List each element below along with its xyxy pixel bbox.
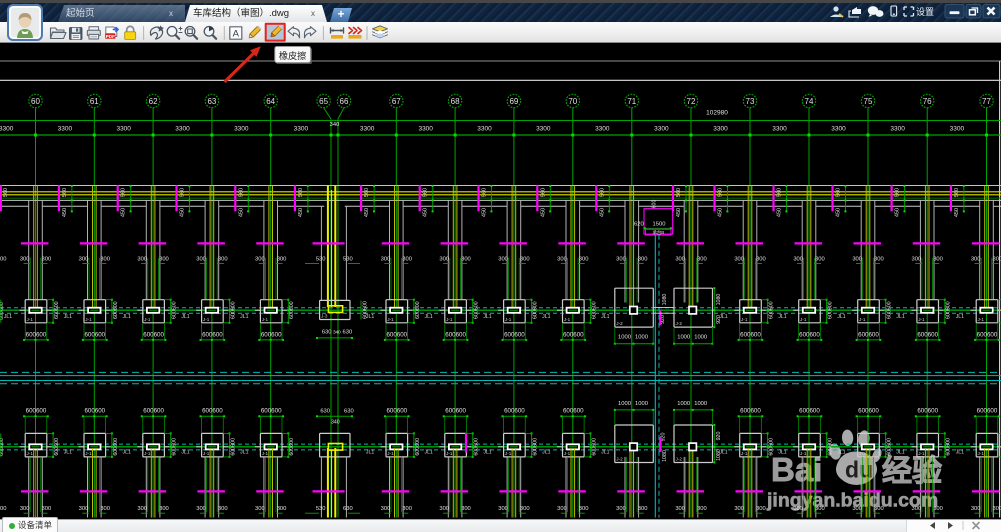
svg-text:300: 300: [933, 506, 943, 512]
svg-text:300: 300: [579, 506, 589, 512]
svg-text:600600: 600600: [977, 331, 998, 338]
svg-text:450: 450: [954, 208, 960, 217]
svg-text:600600: 600600: [799, 331, 820, 338]
svg-text:300: 300: [933, 256, 943, 262]
svg-text:450: 450: [62, 208, 68, 217]
svg-text:450: 450: [599, 208, 605, 217]
svg-text:300: 300: [874, 256, 884, 262]
svg-text:300: 300: [100, 506, 110, 512]
svg-text:J-1: J-1: [27, 451, 34, 456]
svg-text:J-1: J-1: [505, 317, 512, 322]
svg-text:设置: 设置: [916, 7, 934, 17]
svg-text:JL1: JL1: [778, 450, 786, 456]
svg-text:JL1: JL1: [542, 450, 550, 456]
svg-text:600600: 600600: [143, 407, 164, 414]
svg-text:JL1: JL1: [425, 450, 433, 456]
svg-text:J-1: J-1: [446, 317, 453, 322]
svg-text:JL1: JL1: [542, 314, 550, 320]
svg-text:300: 300: [439, 256, 449, 262]
svg-text:J-1: J-1: [446, 451, 453, 456]
svg-text:560: 560: [954, 188, 960, 197]
svg-text:600600: 600600: [740, 331, 761, 338]
svg-text:1000: 1000: [694, 335, 707, 341]
svg-text:560: 560: [718, 188, 724, 197]
svg-text:3300: 3300: [772, 126, 787, 133]
svg-text:600600: 600600: [828, 438, 834, 456]
svg-text:300: 300: [874, 506, 884, 512]
svg-text:630: 630: [320, 408, 330, 414]
svg-text:600600: 600600: [54, 438, 60, 456]
svg-text:300: 300: [137, 506, 147, 512]
svg-text:J-1: J-1: [564, 317, 571, 322]
svg-text:JL1: JL1: [837, 314, 845, 320]
svg-text:300: 300: [616, 256, 626, 262]
svg-text:3300: 3300: [116, 126, 131, 133]
svg-text:1000: 1000: [677, 401, 690, 407]
svg-text:300: 300: [277, 256, 287, 262]
svg-text:102980: 102980: [706, 110, 728, 117]
svg-text:560: 560: [599, 188, 605, 197]
svg-text:J-1: J-1: [27, 317, 34, 322]
svg-text:560: 560: [3, 188, 9, 197]
svg-text:530: 530: [316, 256, 326, 262]
svg-text:600600: 600600: [769, 301, 775, 319]
svg-text:J-1: J-1: [741, 451, 748, 456]
svg-text:JL1: JL1: [483, 314, 491, 320]
svg-text:600600: 600600: [563, 331, 584, 338]
svg-text:J-1: J-1: [918, 451, 925, 456]
svg-text:J-1: J-1: [978, 451, 985, 456]
svg-text:J-1: J-1: [741, 317, 748, 322]
svg-text:600600: 600600: [415, 301, 421, 319]
svg-text:1000: 1000: [618, 335, 631, 341]
svg-text:J-1: J-1: [978, 317, 985, 322]
svg-text:1000: 1000: [635, 401, 648, 407]
svg-text:1500: 1500: [653, 221, 666, 227]
svg-text:300: 300: [20, 506, 30, 512]
svg-text:J-1: J-1: [859, 317, 866, 322]
svg-text:920: 920: [716, 432, 722, 441]
svg-text:62: 62: [149, 97, 158, 106]
svg-text:J-1: J-1: [85, 451, 92, 456]
svg-text:450: 450: [364, 208, 370, 217]
svg-text:600600: 600600: [563, 407, 584, 414]
svg-text:300: 300: [381, 506, 391, 512]
svg-text:450: 450: [895, 208, 901, 217]
svg-text:600600: 600600: [202, 331, 223, 338]
svg-text:JL1: JL1: [956, 314, 964, 320]
svg-text:300: 300: [675, 256, 685, 262]
svg-text:JL1: JL1: [601, 314, 609, 320]
svg-text:300: 300: [255, 506, 265, 512]
svg-text:1000: 1000: [618, 401, 631, 407]
svg-text:600600: 600600: [261, 407, 282, 414]
svg-text:600600: 600600: [445, 331, 466, 338]
svg-text:300: 300: [557, 256, 567, 262]
svg-text:300: 300: [100, 256, 110, 262]
svg-text:300: 300: [42, 256, 52, 262]
svg-text:920: 920: [716, 315, 722, 324]
svg-text:600600: 600600: [84, 407, 105, 414]
svg-text:JL1: JL1: [896, 314, 904, 320]
svg-text:300: 300: [218, 256, 228, 262]
svg-text:300: 300: [734, 256, 744, 262]
svg-text:530: 530: [316, 506, 326, 512]
svg-text:560: 560: [482, 188, 488, 197]
svg-text:560: 560: [238, 188, 244, 197]
svg-text:J-2: J-2: [676, 456, 683, 461]
svg-text:300: 300: [852, 506, 862, 512]
svg-text:630: 630: [322, 330, 332, 336]
svg-text:66: 66: [340, 97, 349, 106]
svg-text:600600: 600600: [858, 331, 879, 338]
svg-text:300: 300: [196, 506, 206, 512]
svg-text:3300: 3300: [950, 126, 965, 133]
svg-text:JL1: JL1: [956, 450, 964, 456]
svg-text:72: 72: [687, 97, 696, 106]
svg-text:77: 77: [982, 97, 991, 106]
svg-text:J-2: J-2: [616, 321, 623, 326]
svg-text:JL1: JL1: [240, 450, 248, 456]
svg-text:300: 300: [79, 506, 89, 512]
svg-text:JL1: JL1: [123, 450, 131, 456]
svg-text:600600: 600600: [532, 438, 538, 456]
svg-text:300: 300: [196, 256, 206, 262]
svg-text:300: 300: [461, 506, 471, 512]
svg-text:JL1: JL1: [778, 314, 786, 320]
svg-text:3300: 3300: [418, 126, 433, 133]
svg-text:300: 300: [520, 506, 530, 512]
svg-text:J-1: J-1: [800, 451, 807, 456]
svg-text:300: 300: [675, 506, 685, 512]
svg-text:450: 450: [836, 208, 842, 217]
svg-text:J-1: J-1: [85, 317, 92, 322]
svg-text:450: 450: [180, 208, 186, 217]
svg-text:J-1: J-1: [203, 317, 210, 322]
svg-text:560: 560: [676, 188, 682, 197]
svg-text:J-1: J-1: [800, 317, 807, 322]
svg-text:600600: 600600: [740, 407, 761, 414]
svg-text:630: 630: [344, 408, 354, 414]
svg-text:600600: 600600: [946, 438, 952, 456]
svg-text:J-2: J-2: [616, 456, 623, 461]
svg-text:3300: 3300: [536, 126, 551, 133]
svg-text:300: 300: [912, 506, 922, 512]
svg-text:450: 450: [540, 208, 546, 217]
svg-text:560: 560: [180, 188, 186, 197]
svg-text:600600: 600600: [474, 438, 480, 456]
svg-text:橡皮擦: 橡皮擦: [279, 50, 307, 61]
svg-text:300: 300: [159, 506, 169, 512]
svg-text:600600: 600600: [289, 301, 295, 319]
svg-text:600600: 600600: [54, 301, 60, 319]
svg-text:600600: 600600: [591, 438, 597, 456]
svg-text:560: 560: [364, 188, 370, 197]
svg-text:600: 600: [652, 200, 658, 209]
svg-text:600600: 600600: [887, 438, 893, 456]
svg-text:300: 300: [815, 506, 825, 512]
svg-text:300: 300: [79, 256, 89, 262]
svg-text:300: 300: [498, 256, 508, 262]
svg-text:J-1: J-1: [564, 451, 571, 456]
svg-text:J-1: J-1: [505, 451, 512, 456]
svg-text:J-1: J-1: [918, 317, 925, 322]
svg-text:300: 300: [697, 506, 707, 512]
svg-text:60: 60: [31, 97, 40, 106]
svg-text:3300: 3300: [477, 126, 492, 133]
svg-text:450: 450: [718, 208, 724, 217]
svg-text:300: 300: [793, 256, 803, 262]
svg-text:560: 560: [62, 188, 68, 197]
svg-text:65: 65: [319, 97, 328, 106]
svg-text:71: 71: [627, 97, 636, 106]
svg-text:300: 300: [277, 506, 287, 512]
svg-text:600600: 600600: [828, 301, 834, 319]
svg-text:J-1: J-1: [144, 317, 151, 322]
svg-text:JL1: JL1: [601, 450, 609, 456]
svg-text:300: 300: [793, 506, 803, 512]
svg-text:600600: 600600: [504, 331, 525, 338]
svg-text:3300: 3300: [595, 126, 610, 133]
svg-text:600600: 600600: [386, 331, 407, 338]
svg-text:600600: 600600: [289, 438, 295, 456]
svg-text:3300: 3300: [234, 126, 249, 133]
svg-text:600600: 600600: [445, 407, 466, 414]
svg-text:JL1: JL1: [123, 314, 131, 320]
svg-text:1080: 1080: [662, 450, 668, 462]
svg-text:J-1: J-1: [859, 451, 866, 456]
svg-text:600600: 600600: [172, 301, 178, 319]
svg-text:73: 73: [746, 97, 755, 106]
svg-text:74: 74: [805, 97, 814, 106]
svg-text:630: 630: [343, 330, 353, 336]
svg-text:J-1: J-1: [387, 317, 394, 322]
svg-text:450: 450: [676, 208, 682, 217]
svg-text:600600: 600600: [113, 438, 119, 456]
svg-text:300: 300: [255, 256, 265, 262]
svg-text:300: 300: [638, 506, 648, 512]
svg-text:630: 630: [343, 506, 353, 512]
svg-text:450: 450: [482, 208, 488, 217]
svg-text:3300: 3300: [890, 126, 905, 133]
svg-text:560: 560: [121, 188, 127, 197]
svg-text:600600: 600600: [799, 407, 820, 414]
svg-text:J-1: J-1: [387, 451, 394, 456]
svg-text:J-1: J-1: [203, 451, 210, 456]
svg-text:600600: 600600: [143, 331, 164, 338]
svg-text:300: 300: [697, 256, 707, 262]
svg-text:600600: 600600: [230, 301, 236, 319]
svg-text:300: 300: [579, 256, 589, 262]
svg-text:J-1: J-1: [144, 451, 151, 456]
svg-text:68: 68: [451, 97, 460, 106]
svg-text:1000: 1000: [635, 335, 648, 341]
svg-text:340: 340: [330, 122, 340, 128]
svg-text:J-1: J-1: [262, 451, 269, 456]
svg-text:du: du: [845, 457, 873, 483]
svg-text:JL1: JL1: [425, 314, 433, 320]
svg-text:920: 920: [661, 433, 667, 442]
svg-text:560: 560: [836, 188, 842, 197]
svg-text:600600: 600600: [977, 407, 998, 414]
svg-text:76: 76: [923, 97, 932, 106]
svg-text:300: 300: [137, 256, 147, 262]
svg-text:600600: 600600: [504, 407, 525, 414]
svg-text:300: 300: [756, 506, 766, 512]
svg-text:560: 560: [540, 188, 546, 197]
svg-text:PDF: PDF: [106, 34, 115, 39]
svg-text:300: 300: [912, 256, 922, 262]
svg-text:600600: 600600: [887, 301, 893, 319]
svg-text:600600: 600600: [202, 407, 223, 414]
svg-text:300: 300: [402, 506, 412, 512]
svg-text:63: 63: [207, 97, 216, 106]
svg-text:600600: 600600: [26, 331, 47, 338]
svg-text:3300: 3300: [654, 126, 669, 133]
svg-text:70: 70: [568, 97, 577, 106]
svg-text:300: 300: [159, 256, 169, 262]
svg-text:340: 340: [331, 420, 340, 426]
svg-text:620: 620: [634, 221, 644, 227]
svg-text:300: 300: [520, 256, 530, 262]
svg-text:JL1: JL1: [64, 450, 72, 456]
svg-text:300: 300: [852, 256, 862, 262]
svg-text:450: 450: [298, 208, 304, 217]
svg-text:300: 300: [638, 256, 648, 262]
svg-text:600600: 600600: [415, 438, 421, 456]
svg-text:JL1: JL1: [181, 314, 189, 320]
svg-text:J-1: J-1: [262, 317, 269, 322]
svg-text:61: 61: [90, 97, 99, 106]
svg-text:300: 300: [756, 256, 766, 262]
svg-text:3300: 3300: [713, 126, 728, 133]
svg-text:A: A: [233, 29, 240, 40]
svg-text:300: 300: [42, 506, 52, 512]
svg-text:承台B: 承台B: [652, 229, 664, 236]
svg-text:300: 300: [993, 506, 1001, 512]
svg-text:1000: 1000: [677, 335, 690, 341]
svg-text:600600: 600600: [591, 301, 597, 319]
svg-text:560: 560: [298, 188, 304, 197]
svg-text:3300: 3300: [0, 126, 14, 133]
svg-text:J-3: J-3: [321, 314, 328, 319]
svg-text:600600: 600600: [917, 407, 938, 414]
svg-text:600600: 600600: [946, 301, 952, 319]
svg-text:JL1: JL1: [896, 450, 904, 456]
svg-text:300: 300: [439, 506, 449, 512]
svg-text:300: 300: [971, 506, 981, 512]
svg-text:1000: 1000: [694, 401, 707, 407]
svg-text:600600: 600600: [172, 438, 178, 456]
svg-text:450: 450: [121, 208, 127, 217]
svg-text:450: 450: [423, 208, 429, 217]
svg-text:300: 300: [381, 256, 391, 262]
svg-text:600600: 600600: [113, 301, 119, 319]
svg-text:JL1: JL1: [4, 314, 12, 320]
svg-text:600600: 600600: [84, 331, 105, 338]
svg-text:600600: 600600: [386, 407, 407, 414]
svg-text:3300: 3300: [360, 126, 375, 133]
svg-text:经验: 经验: [882, 454, 942, 488]
svg-text:JL1: JL1: [181, 450, 189, 456]
svg-text:450: 450: [777, 208, 783, 217]
svg-text:1080: 1080: [662, 294, 668, 306]
svg-text:J-2: J-2: [676, 321, 683, 326]
svg-text:560: 560: [777, 188, 783, 197]
svg-text:340: 340: [333, 330, 341, 335]
svg-text:JL1: JL1: [366, 450, 374, 456]
svg-text:300: 300: [20, 256, 30, 262]
svg-text:75: 75: [864, 97, 873, 106]
svg-text:450: 450: [238, 208, 244, 217]
svg-text:600600: 600600: [474, 301, 480, 319]
svg-text:300: 300: [498, 506, 508, 512]
svg-text:JL1: JL1: [64, 314, 72, 320]
svg-text:69: 69: [509, 97, 518, 106]
svg-text:JL1: JL1: [483, 450, 491, 456]
svg-text:00: 00: [0, 256, 6, 262]
svg-text:JL1: JL1: [837, 450, 845, 456]
svg-text:3300: 3300: [294, 126, 309, 133]
svg-text:600600: 600600: [230, 438, 236, 456]
svg-text:530: 530: [343, 256, 353, 262]
svg-text:600600: 600600: [769, 438, 775, 456]
svg-text:300: 300: [993, 256, 1001, 262]
svg-text:600600: 600600: [26, 407, 47, 414]
svg-text:600600: 600600: [261, 331, 282, 338]
svg-text:300: 300: [557, 506, 567, 512]
svg-text:1080: 1080: [716, 294, 722, 306]
svg-text:300: 300: [971, 256, 981, 262]
svg-text:3300: 3300: [175, 126, 190, 133]
svg-text:JL1: JL1: [240, 314, 248, 320]
svg-text:600600: 600600: [363, 301, 369, 319]
svg-text:300: 300: [402, 256, 412, 262]
svg-text:600600: 600600: [532, 301, 538, 319]
svg-text:3300: 3300: [831, 126, 846, 133]
svg-text:64: 64: [266, 97, 275, 106]
svg-text:300: 300: [461, 256, 471, 262]
svg-text:300: 300: [815, 256, 825, 262]
svg-text:300: 300: [616, 506, 626, 512]
svg-text:560: 560: [423, 188, 429, 197]
svg-text:67: 67: [392, 97, 401, 106]
svg-text:560: 560: [895, 188, 901, 197]
svg-text:1080: 1080: [716, 449, 722, 461]
svg-text:600600: 600600: [858, 407, 879, 414]
svg-text:600600: 600600: [917, 331, 938, 338]
svg-text:00: 00: [0, 506, 6, 512]
svg-text:300: 300: [218, 506, 228, 512]
svg-text:3300: 3300: [58, 126, 73, 133]
svg-text:300: 300: [734, 506, 744, 512]
